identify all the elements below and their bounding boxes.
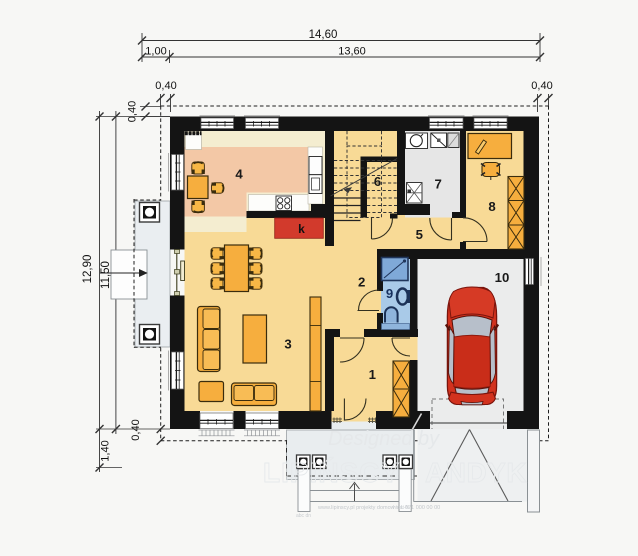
svg-text:0,40: 0,40	[155, 80, 176, 92]
svg-text:8: 8	[488, 199, 495, 214]
svg-text:1: 1	[369, 367, 376, 382]
svg-text:1,00: 1,00	[145, 46, 166, 58]
svg-text:14,60: 14,60	[309, 29, 338, 41]
svg-text:h ost-N: h ost-N	[393, 505, 410, 511]
svg-text:4: 4	[235, 167, 243, 182]
svg-text:9: 9	[386, 286, 393, 301]
svg-text:11,50: 11,50	[100, 261, 112, 289]
svg-text:13,60: 13,60	[338, 46, 366, 58]
svg-text:0,40: 0,40	[130, 419, 142, 440]
svg-text:2: 2	[358, 275, 365, 290]
svg-text:5: 5	[416, 227, 423, 242]
svg-text:LIPIŃSCY: LIPIŃSCY	[263, 457, 400, 488]
svg-text:10: 10	[495, 270, 510, 285]
svg-text:0,40: 0,40	[127, 101, 139, 122]
svg-text:abc dn: abc dn	[296, 513, 311, 519]
svg-text:k: k	[298, 222, 305, 236]
svg-text:12,90: 12,90	[82, 255, 94, 284]
svg-text:ANDYK: ANDYK	[425, 457, 527, 488]
svg-text:1,40: 1,40	[100, 440, 112, 461]
svg-text:3: 3	[284, 337, 291, 352]
svg-text:www.lipinscy.pl projekty domo: www.lipinscy.pl projekty domow tel. 071 …	[317, 505, 440, 511]
svg-text:6: 6	[374, 174, 381, 189]
svg-text:Designed by: Designed by	[328, 428, 440, 450]
svg-text:7: 7	[435, 177, 442, 192]
svg-text:0,40: 0,40	[531, 80, 552, 92]
